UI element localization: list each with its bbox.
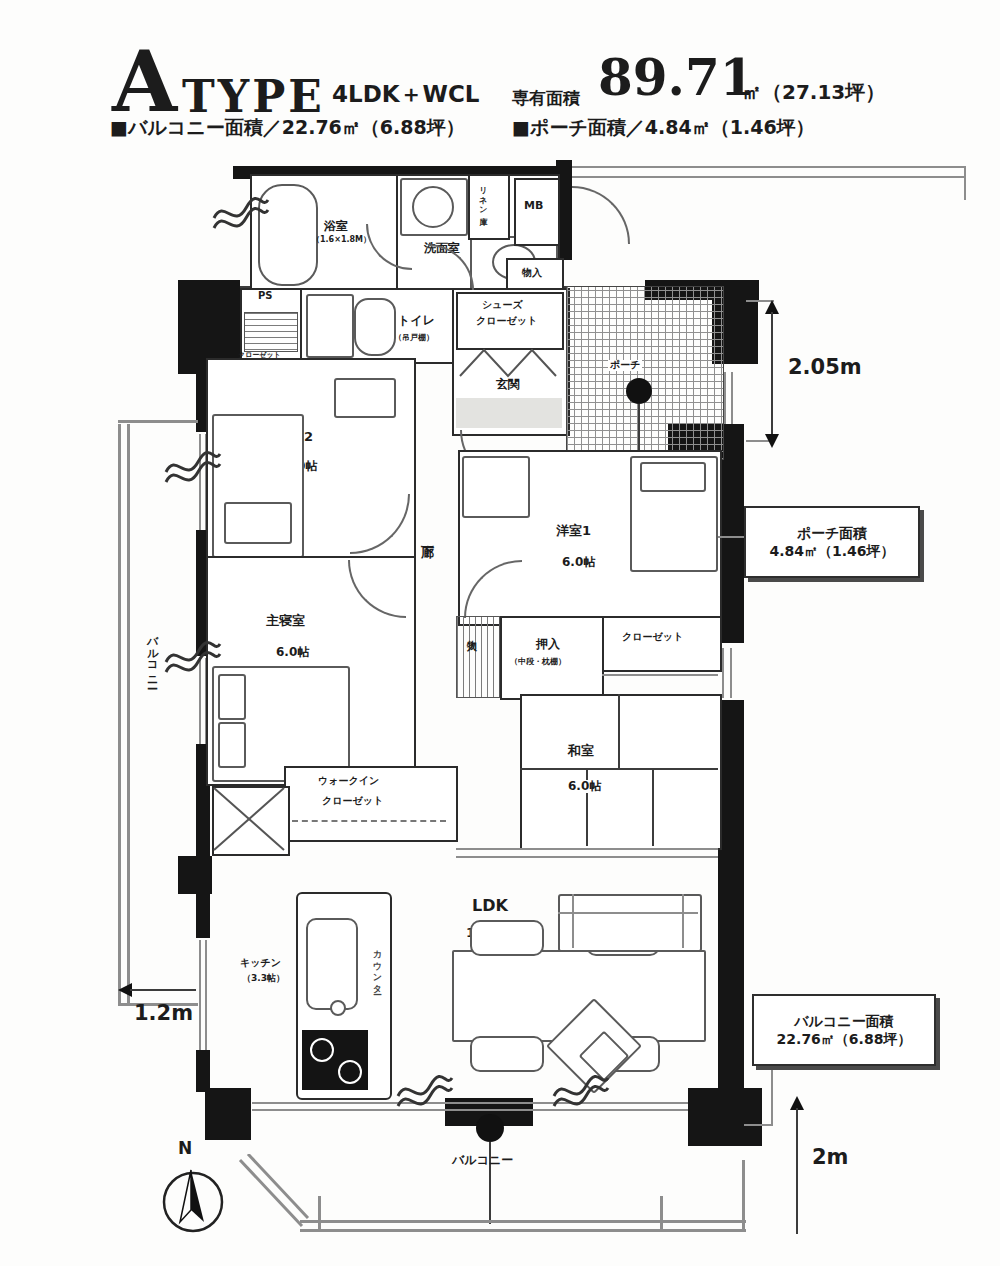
- folding-door: [458, 348, 558, 378]
- boundary-line: [558, 166, 966, 168]
- dim-balcony-south: 2m: [812, 1146, 849, 1168]
- break-mark: [552, 1070, 610, 1110]
- bed-pillow: [218, 722, 246, 768]
- toilet-cabinet: [306, 294, 354, 358]
- porch-open-side: [724, 372, 726, 424]
- bedroom1-closet: [602, 616, 722, 672]
- porch-area-line: ■ポーチ面積／4.84㎡（1.46坪）: [512, 118, 815, 138]
- compass-north-label: N: [178, 1140, 192, 1158]
- kitchen-size: （3.3帖）: [242, 974, 285, 983]
- oshiire-note: （中段・枕棚）: [510, 658, 566, 666]
- tatami-line: [520, 768, 718, 770]
- wall-bottom-left: [205, 1088, 251, 1140]
- porch-callout-value: 4.84㎡（1.46坪）: [769, 544, 894, 559]
- entrance-tataki: [456, 398, 562, 428]
- balcony-railing: [300, 1229, 746, 1232]
- break-mark: [212, 192, 270, 232]
- bathroom-label: 浴室: [324, 220, 348, 233]
- balcony-west-railing: [127, 424, 130, 1006]
- balcony-west-cap: [118, 420, 198, 423]
- linen-storage: [468, 174, 510, 240]
- bed-pillow: [218, 674, 246, 720]
- stove-burner: [310, 1038, 334, 1062]
- hallway-label: 廊下: [420, 534, 434, 536]
- porch-callout: ポーチ面積 4.84㎡（1.46坪）: [744, 506, 920, 578]
- area-suffix: ㎡（27.13坪）: [742, 82, 885, 103]
- toilet-bowl: [354, 298, 396, 356]
- master-bedroom-size: 6.0帖: [276, 646, 309, 659]
- floor-plan-page: A TYPE 4LDK＋WCL 専有面積 89.71 ㎡（27.13坪） ■バル…: [0, 0, 1000, 1266]
- toilet-label: トイレ: [398, 314, 435, 327]
- compass-icon: [158, 1164, 228, 1236]
- railing-post: [660, 1196, 663, 1230]
- balcony-south-label: バルコニー: [452, 1154, 513, 1167]
- kitchen-sink: [306, 918, 358, 1010]
- layout-label: 4LDK＋WCL: [332, 82, 479, 106]
- washing-machine: [412, 186, 454, 228]
- bedroom1-closet-label: クローゼット: [622, 632, 683, 643]
- wic-label-2: クローゼット: [322, 796, 383, 807]
- shoes-closet-label-1: シューズ: [482, 300, 523, 311]
- balcony-railing: [300, 1220, 746, 1223]
- tatami-line: [618, 694, 620, 768]
- porch-area: [566, 286, 724, 460]
- bedroom2-closet: [244, 312, 298, 352]
- shoes-closet-label-2: クローゼット: [476, 316, 537, 327]
- pipe-space-label: PS: [258, 291, 273, 302]
- ldk-label: LDK: [472, 898, 508, 915]
- dim-line: [796, 1108, 798, 1234]
- sofa-arm-line: [572, 894, 574, 948]
- plan-type-word: TYPE: [182, 74, 325, 120]
- kitchen-counter-label: カウンター: [372, 944, 381, 990]
- sofa-back-line: [558, 912, 698, 914]
- break-mark: [164, 446, 222, 486]
- porch-open-side: [731, 372, 733, 424]
- kitchen-stove: [302, 1030, 368, 1090]
- dining-chair: [470, 920, 544, 956]
- wic-label-1: ウォークイン: [318, 776, 379, 787]
- linen-storage-label: リネン庫: [478, 180, 486, 211]
- dim-arrowhead: [765, 434, 779, 448]
- bedroom1-size: 6.0帖: [562, 556, 595, 569]
- sliding-door-track: [456, 848, 718, 850]
- sofa: [558, 894, 702, 952]
- oshiire-label: 押入: [536, 638, 560, 651]
- area-value: 89.71: [598, 52, 755, 105]
- window-right: [722, 648, 724, 698]
- sofa-arm-line: [682, 894, 684, 948]
- dim-line: [130, 989, 196, 991]
- wall-left-5: [196, 1050, 210, 1092]
- balcony-callout-value: 22.76㎡（6.88坪）: [777, 1032, 912, 1047]
- window-left-3: [199, 940, 201, 1050]
- entrance-label: 玄関: [496, 378, 520, 391]
- desk: [334, 378, 396, 418]
- mid-storage: [456, 616, 500, 698]
- japanese-room-label: 和室: [566, 744, 596, 758]
- master-bedroom-label: 主寝室: [266, 614, 305, 628]
- boundary-line: [558, 176, 966, 178]
- kitchen-label: キッチン: [240, 958, 281, 969]
- callout-connector: [744, 1124, 772, 1126]
- porch-label: ポーチ: [608, 360, 642, 371]
- boundary-line-end: [964, 166, 966, 200]
- stove-burner: [338, 1060, 362, 1084]
- bed-pillow: [224, 502, 292, 544]
- closet-shelf-line: [602, 674, 718, 676]
- porch-callout-title: ポーチ面積: [797, 526, 868, 541]
- bed-pillow: [640, 462, 706, 492]
- wall-left-4: [196, 894, 210, 938]
- kitchen-faucet: [330, 1000, 346, 1016]
- balcony-west-railing: [118, 424, 121, 1006]
- japanese-room-size: 6.0帖: [566, 780, 603, 793]
- callout-connector: [771, 1062, 773, 1126]
- bedroom1-label: 洋室1: [556, 524, 591, 538]
- mid-storage-label: 物入: [466, 632, 477, 634]
- dim-balcony-west: 1.2m: [134, 1002, 193, 1024]
- railing-post: [318, 1196, 321, 1230]
- window-south: [252, 1102, 688, 1104]
- balcony-callout: バルコニー面積 22.76㎡（6.88坪）: [752, 994, 936, 1066]
- area-label: 専有面積: [512, 90, 580, 108]
- bathroom-size: （1.6×1.8M）: [312, 236, 371, 244]
- desk: [462, 456, 530, 518]
- balcony-pillar: [476, 1114, 504, 1142]
- balcony-callout-title: バルコニー面積: [794, 1014, 893, 1029]
- dim-line: [771, 312, 773, 436]
- shaft-x-mark: [212, 786, 286, 852]
- meter-box-label: MB: [524, 200, 543, 212]
- break-mark: [396, 1070, 454, 1110]
- tatami-line: [652, 768, 654, 846]
- wall-bottom-right: [688, 1088, 762, 1146]
- balcony-area-line: ■バルコニー面積／22.76㎡（6.88坪）: [110, 118, 465, 138]
- japanese-room: [520, 694, 722, 850]
- dim-porch-depth: 2.05m: [788, 356, 862, 378]
- entrance-storage-label: 物入: [522, 268, 542, 279]
- wall-left-block-2: [178, 856, 212, 894]
- balcony-west-label: バルコニー: [146, 628, 158, 683]
- plan-type-letter: A: [112, 38, 177, 126]
- window-left-3: [205, 940, 207, 1050]
- meter-box: [514, 178, 560, 246]
- toilet-note: （吊戸棚）: [394, 334, 434, 342]
- sliding-door-track: [456, 856, 718, 858]
- dining-chair: [470, 1036, 544, 1072]
- window-right: [730, 648, 732, 698]
- window-south: [252, 1109, 688, 1111]
- balcony-railing-diagonal: [238, 1154, 310, 1230]
- entry-door-arc: [572, 186, 630, 244]
- railing-post: [742, 1160, 745, 1230]
- wic-hanger-pipe: [292, 820, 446, 822]
- break-mark: [164, 636, 222, 676]
- callout-connector: [718, 536, 744, 538]
- porch-pillar: [626, 378, 652, 404]
